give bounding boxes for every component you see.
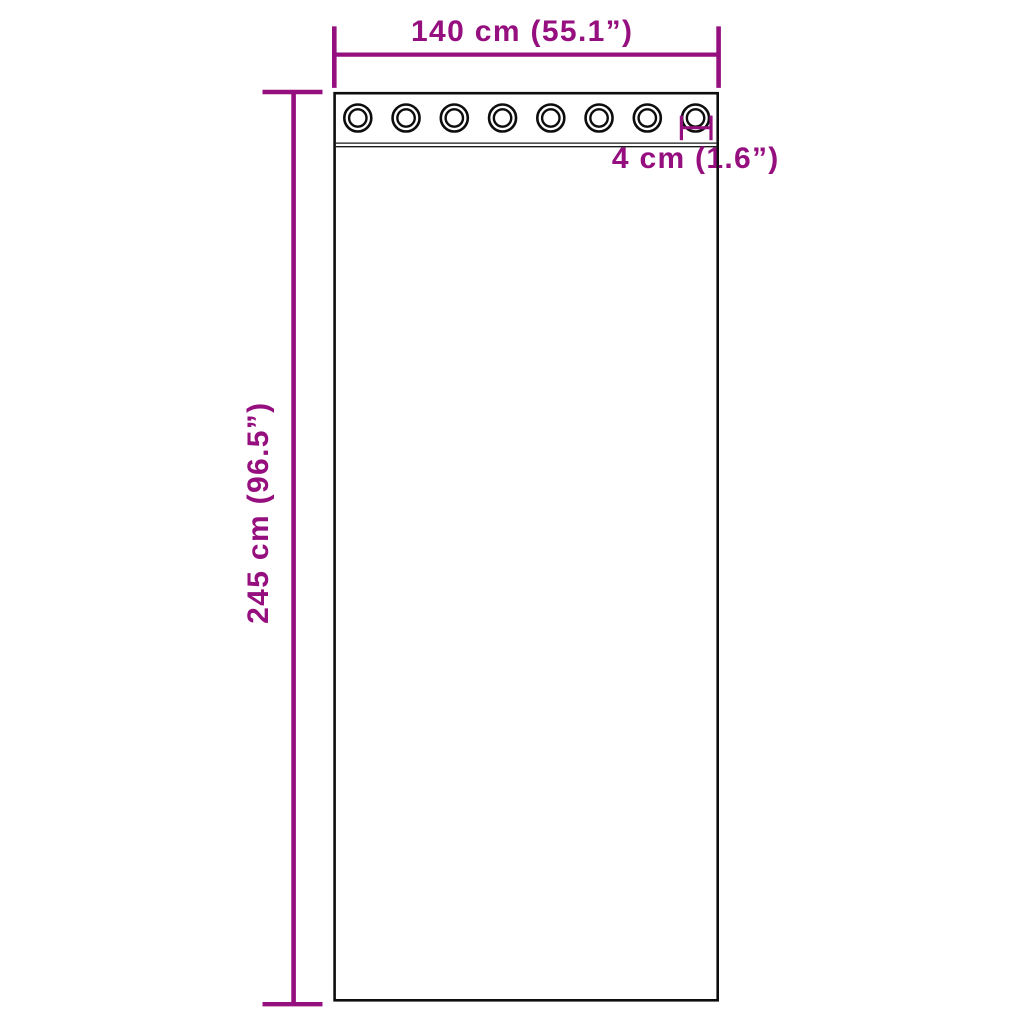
svg-text:245 cm (96.5”): 245 cm (96.5”) [242,402,275,624]
svg-text:4 cm (1.6”): 4 cm (1.6”) [612,142,780,175]
svg-text:140 cm (55.1”): 140 cm (55.1”) [411,15,633,48]
